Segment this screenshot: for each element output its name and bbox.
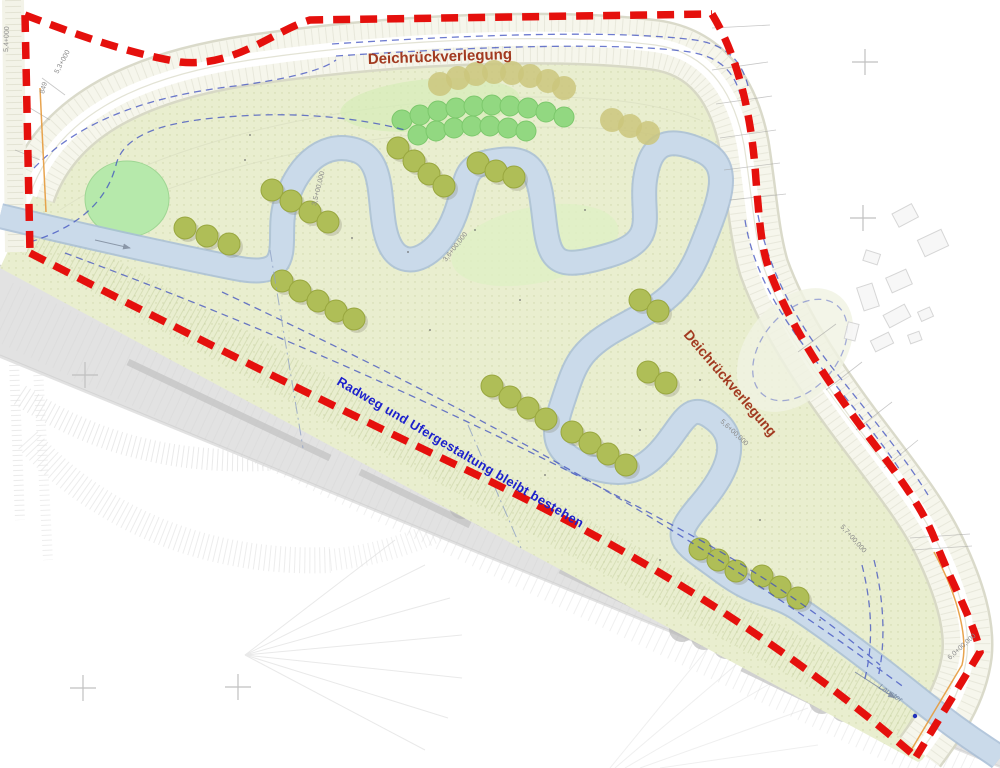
plan-canvas: Deichrückverlegung Deichrückverlegung Ra… (0, 0, 1000, 768)
site-plan: Deichrückverlegung Deichrückverlegung Ra… (0, 0, 1000, 768)
station-label: 5,4+000 (3, 26, 11, 52)
